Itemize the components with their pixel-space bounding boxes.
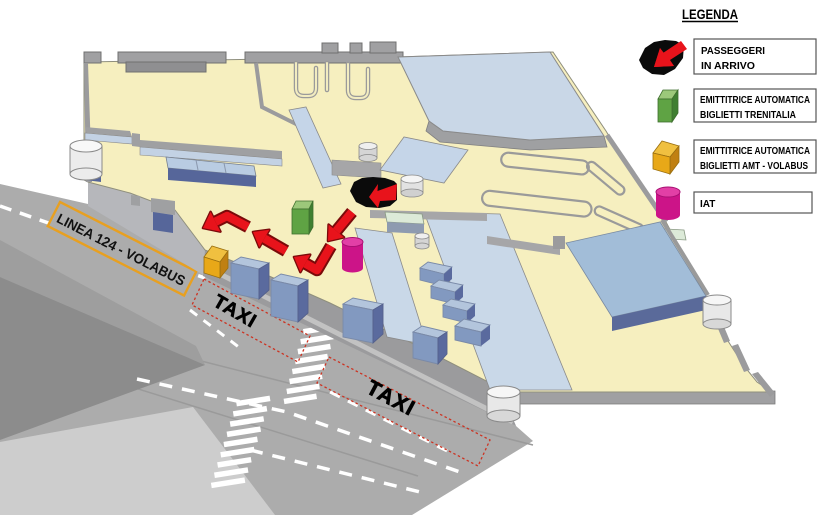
svg-text:LEGENDA: LEGENDA (682, 6, 738, 22)
svg-text:BIGLIETTI AMT - VOLABUS: BIGLIETTI AMT - VOLABUS (700, 161, 808, 172)
svg-text:IAT: IAT (700, 199, 715, 210)
svg-text:EMITTITRICE AUTOMATICA: EMITTITRICE AUTOMATICA (700, 95, 810, 106)
svg-text:PASSEGGERI: PASSEGGERI (701, 45, 765, 57)
svg-text:BIGLIETTI TRENITALIA: BIGLIETTI TRENITALIA (700, 110, 796, 121)
svg-text:EMITTITRICE AUTOMATICA: EMITTITRICE AUTOMATICA (700, 146, 810, 157)
svg-text:IN ARRIVO: IN ARRIVO (701, 60, 755, 72)
